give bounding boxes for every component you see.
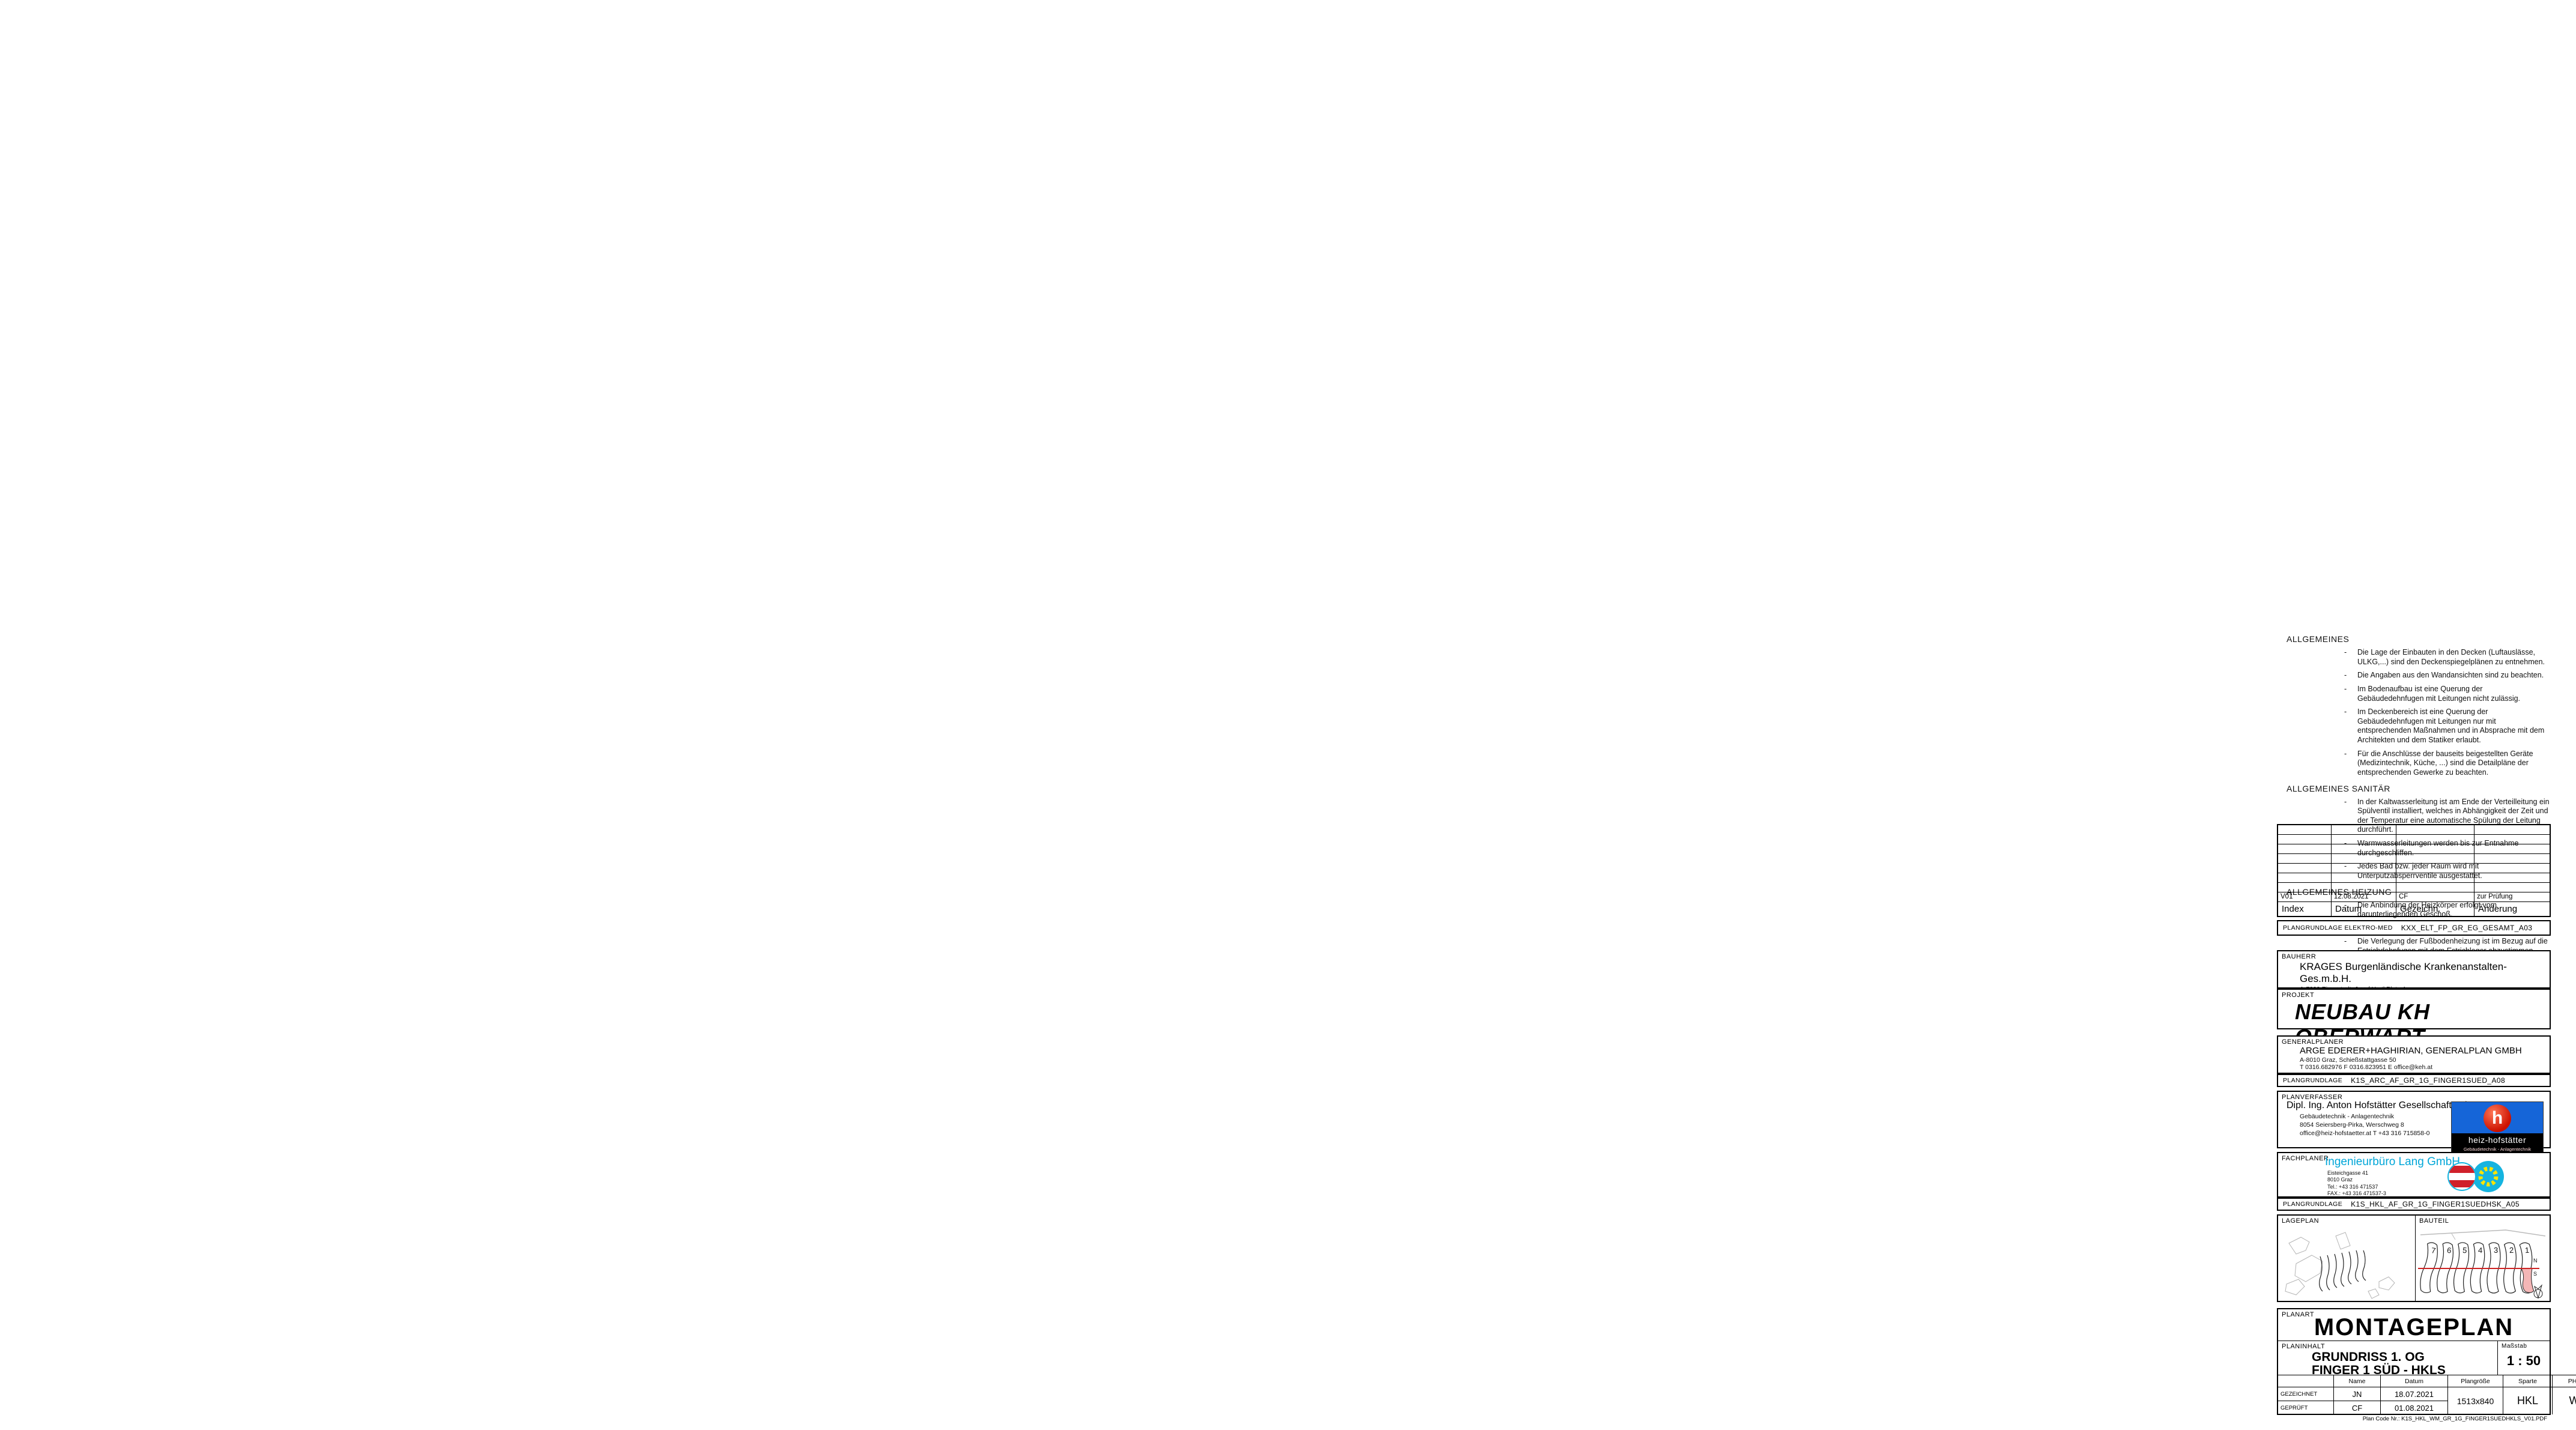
revision-cell bbox=[2474, 883, 2550, 892]
bauteil-south: S bbox=[2533, 1271, 2537, 1277]
revision-cell bbox=[2396, 864, 2474, 873]
plangrundlage-arch-bar: PLANGRUNDLAGE K1S_ARC_AF_GR_1G_FINGER1SU… bbox=[2277, 1074, 2551, 1087]
revision-cell bbox=[2278, 835, 2331, 844]
revision-cell bbox=[2331, 835, 2396, 844]
revision-cell bbox=[2474, 873, 2550, 882]
sparte-value: HKL bbox=[2503, 1387, 2552, 1414]
projekt-box: PROJEKT NEUBAU KH OBERWART bbox=[2277, 989, 2551, 1029]
revision-cell bbox=[2331, 864, 2396, 873]
note-bullet: Für die Anschlüsse der bauseits beigeste… bbox=[2287, 750, 2550, 778]
revision-cell bbox=[2396, 883, 2474, 892]
fachplaner-l3: Tel.: +43 316 471537 bbox=[2327, 1184, 2386, 1190]
plangrundlage-arch-label: PLANGRUNDLAGE bbox=[2283, 1077, 2342, 1084]
revision-cell bbox=[2278, 844, 2331, 853]
lageplan-label: LAGEPLAN bbox=[2282, 1217, 2319, 1225]
plangrundlage-hkl-value: K1S_HKL_AF_GR_1G_FINGER1SUEDHSK_A05 bbox=[2351, 1200, 2520, 1208]
revision-cell bbox=[2278, 873, 2331, 882]
generalplaner-address: A-8010 Graz, Schießstattgasse 50 bbox=[2278, 1056, 2550, 1064]
revision-cell bbox=[2396, 873, 2474, 882]
bauteil-number: 3 bbox=[2494, 1246, 2498, 1255]
bauteil-number: 5 bbox=[2462, 1246, 2467, 1255]
logo-wordmark: heiz-hofstätter bbox=[2452, 1133, 2543, 1147]
plangrundlage-arch-value: K1S_ARC_AF_GR_1G_FINGER1SUED_A08 bbox=[2351, 1076, 2505, 1085]
bauteil-number: 1 bbox=[2524, 1246, 2529, 1255]
logo-h-ball: h bbox=[2484, 1104, 2511, 1132]
bauteil-number: 7 bbox=[2431, 1246, 2436, 1255]
fachplaner-name: Ingenieurbüro Lang GmbH bbox=[2325, 1156, 2460, 1169]
fachplaner-l1: Eisteichgasse 41 bbox=[2327, 1170, 2386, 1177]
bauteil-map: 7654321NS bbox=[2416, 1226, 2550, 1302]
revision-table: V0112.08.2021CFzur PrüfungIndexDatumGeze… bbox=[2277, 824, 2551, 917]
revision-cell bbox=[2331, 844, 2396, 853]
generalplaner-contact: T 0316.682976 F 0316.823951 E office@keh… bbox=[2278, 1064, 2550, 1071]
phase-value: WM bbox=[2552, 1387, 2576, 1414]
notes-heading-sanitaer: ALLGEMEINES SANITÄR bbox=[2287, 784, 2550, 793]
fachplaner-l2: 8010 Graz bbox=[2327, 1177, 2386, 1183]
revision-cell: Gezeichn. bbox=[2396, 902, 2474, 916]
floor-plan-canvas bbox=[0, 0, 2576, 1430]
plan-code: Plan Code Nr.: K1S_HKL_WM_GR_1G_FINGER1S… bbox=[2278, 1414, 2550, 1422]
massstab-label: Maßstab bbox=[2502, 1343, 2527, 1350]
bauteil-number: 2 bbox=[2509, 1246, 2514, 1255]
col-phase: PHASE bbox=[2552, 1375, 2576, 1387]
revision-cell bbox=[2278, 864, 2331, 873]
heiz-hofstaetter-logo: h heiz-hofstätter Gebäudetechnik - Anlag… bbox=[2451, 1101, 2544, 1154]
generalplaner-label: GENERALPLANER bbox=[2282, 1038, 2344, 1046]
fachplaner-box: FACHPLANER Ingenieurbüro Lang GmbH Eiste… bbox=[2277, 1152, 2551, 1198]
revision-cell bbox=[2278, 883, 2331, 892]
note-bullet: Im Bodenaufbau ist eine Querung der Gebä… bbox=[2287, 685, 2550, 703]
bauteil-finger: 7 bbox=[2419, 1242, 2438, 1294]
revision-cell bbox=[2396, 835, 2474, 844]
geprueft-datum: 01.08.2021 bbox=[2380, 1401, 2447, 1414]
plangrundlage-hkl-bar: PLANGRUNDLAGE K1S_HKL_AF_GR_1G_FINGER1SU… bbox=[2277, 1198, 2551, 1211]
gezeichnet-datum: 18.07.2021 bbox=[2380, 1387, 2447, 1401]
fachplaner-label: FACHPLANER bbox=[2282, 1155, 2329, 1162]
geprueft-name: CF bbox=[2333, 1401, 2380, 1414]
revision-cell bbox=[2474, 854, 2550, 863]
planinhalt-line1: GRUNDRISS 1. OG bbox=[2312, 1351, 2497, 1364]
bauherr-name: KRAGES Burgenländische Krankenanstalten-… bbox=[2278, 951, 2550, 985]
plangrundlage-elektro-value: KXX_ELT_FP_GR_EG_GESAMT_A03 bbox=[2401, 924, 2533, 932]
revision-cell bbox=[2474, 825, 2550, 834]
bauteil-finger: 6 bbox=[2436, 1242, 2455, 1294]
note-bullet: Im Deckenbereich ist eine Querung der Ge… bbox=[2287, 707, 2550, 745]
bauteil-finger: 5 bbox=[2453, 1242, 2470, 1293]
geprueft-label: GEPRÜFT bbox=[2278, 1401, 2333, 1414]
revision-cell bbox=[2331, 854, 2396, 863]
bauteil-north: N bbox=[2533, 1258, 2538, 1264]
note-bullet: Die Lage der Einbauten in den Decken (Lu… bbox=[2287, 648, 2550, 667]
planverfasser-label: PLANVERFASSER bbox=[2282, 1094, 2342, 1101]
revision-cell: Datum bbox=[2331, 902, 2396, 916]
revision-cell bbox=[2278, 854, 2331, 863]
revision-cell: Index bbox=[2278, 902, 2331, 916]
revision-cell: CF bbox=[2396, 892, 2474, 901]
revision-cell bbox=[2396, 844, 2474, 853]
bauherr-box: BAUHERR KRAGES Burgenländische Krankenan… bbox=[2277, 950, 2551, 989]
projekt-label: PROJEKT bbox=[2282, 992, 2314, 999]
planverfasser-box: PLANVERFASSER Dipl. Ing. Anton Hofstätte… bbox=[2277, 1091, 2551, 1148]
bauherr-label: BAUHERR bbox=[2282, 953, 2316, 960]
drawing-sheet: ALLGEMEINES Die Lage der Einbauten in de… bbox=[0, 0, 2576, 1430]
bauteil-number: 4 bbox=[2478, 1246, 2483, 1255]
revision-cell bbox=[2474, 844, 2550, 853]
plangrundlage-elektro-label: PLANGRUNDLAGE ELEKTRO-MED bbox=[2283, 924, 2393, 932]
lageplan-bauteil-box: LAGEPLAN bbox=[2277, 1214, 2551, 1302]
notes-list-allgemeines: Die Lage der Einbauten in den Decken (Lu… bbox=[2287, 648, 2550, 778]
revision-cell: 12.08.2021 bbox=[2331, 892, 2396, 901]
bauteil-number: 6 bbox=[2446, 1246, 2452, 1255]
fachplaner-l4: FAX.: +43 316 471537-3 bbox=[2327, 1190, 2386, 1197]
col-sparte: Sparte bbox=[2503, 1375, 2552, 1387]
bauteil-finger: 4 bbox=[2470, 1243, 2485, 1294]
revision-cell bbox=[2331, 873, 2396, 882]
planinhalt-line2: FINGER 1 SÜD - HKLS bbox=[2312, 1364, 2497, 1377]
plangrundlage-elektro-bar: PLANGRUNDLAGE ELEKTRO-MED KXX_ELT_FP_GR_… bbox=[2277, 920, 2551, 936]
revision-cell: zur Prüfung bbox=[2474, 892, 2550, 901]
title-block: PLANART MONTAGEPLAN PLANINHALT GRUNDRISS… bbox=[2277, 1308, 2551, 1415]
plangroesse-value: 1513x840 bbox=[2447, 1387, 2503, 1414]
planart-value: MONTAGEPLAN bbox=[2278, 1309, 2550, 1341]
revision-cell bbox=[2474, 864, 2550, 873]
revision-cell bbox=[2474, 835, 2550, 844]
planinhalt-label: PLANINHALT bbox=[2282, 1343, 2325, 1350]
revision-cell: Änderung bbox=[2474, 902, 2550, 916]
revision-cell bbox=[2396, 854, 2474, 863]
gezeichnet-label: GEZEICHNET bbox=[2278, 1387, 2333, 1401]
generalplaner-box: GENERALPLANER ARGE EDERER+HAGHIRIAN, GEN… bbox=[2277, 1035, 2551, 1074]
ingenieurbuero-logo bbox=[2441, 1158, 2514, 1195]
notes-heading-allgemeines: ALLGEMEINES bbox=[2287, 634, 2550, 644]
revision-cell bbox=[2331, 883, 2396, 892]
gezeichnet-name: JN bbox=[2333, 1387, 2380, 1401]
revision-cell bbox=[2396, 825, 2474, 834]
bauteil-label: BAUTEIL bbox=[2419, 1217, 2449, 1225]
plangrundlage-hkl-label: PLANGRUNDLAGE bbox=[2283, 1201, 2342, 1208]
revision-cell bbox=[2278, 825, 2331, 834]
lageplan-map bbox=[2278, 1226, 2414, 1302]
planart-label: PLANART bbox=[2282, 1311, 2314, 1318]
note-bullet: Die Angaben aus den Wandansichten sind z… bbox=[2287, 671, 2550, 680]
revision-cell bbox=[2331, 825, 2396, 834]
revision-cell: V01 bbox=[2278, 892, 2331, 901]
